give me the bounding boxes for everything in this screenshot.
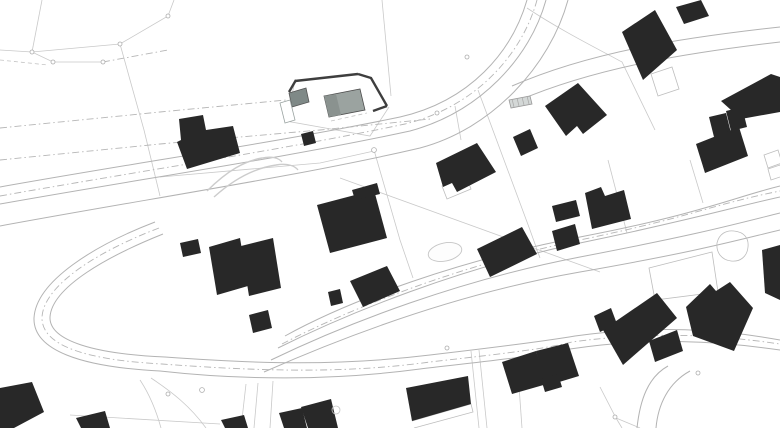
building-s-1 (406, 376, 471, 421)
survey-markers-shape (696, 371, 700, 375)
south-branch-2 (656, 371, 690, 428)
building-e-small-1 (552, 200, 580, 222)
parcel-lines-shape (254, 383, 258, 428)
building-center-house (317, 190, 387, 253)
building-c-garage (328, 289, 343, 306)
site-plan (0, 0, 780, 428)
building-w-large (177, 115, 240, 169)
survey-markers-shape (200, 388, 205, 393)
building-c-east (477, 227, 537, 277)
survey-markers-shape (166, 14, 170, 18)
building-center-big (436, 143, 496, 192)
parcel-lines-shape (140, 380, 161, 428)
parcel-lines-shape (32, 0, 174, 52)
parcel-lines-shape (600, 387, 622, 428)
south-branch-1 (637, 366, 668, 428)
parcel-lines-shape (382, 0, 391, 96)
survey-markers-shape (445, 346, 449, 350)
building-e-edge (762, 245, 780, 300)
site-structures (280, 88, 532, 123)
building-sw-corner (0, 382, 44, 428)
site-plan-canvas (0, 0, 780, 428)
site-garage (289, 88, 309, 107)
parcel-lines-shape (270, 381, 273, 428)
parcel-lines-shape (32, 0, 42, 52)
boundary-dashdot-shape (103, 50, 168, 62)
building-c-house (350, 266, 400, 307)
site-boundary-n (295, 74, 358, 81)
pond-oval (427, 240, 464, 265)
building-mid-garage (180, 239, 201, 257)
building-sc-2 (301, 399, 338, 428)
road-edges (0, 0, 780, 428)
building-e-small-2 (552, 224, 580, 251)
dashed-parcel-shape (0, 60, 48, 65)
survey-markers-shape (166, 392, 170, 396)
survey-markers-shape (101, 60, 105, 64)
survey-markers-shape (118, 42, 122, 46)
building-ne-main (622, 10, 677, 80)
boundary-dashdot-shape (0, 100, 286, 128)
driveway-loop (717, 231, 748, 261)
driveway-curves (207, 157, 298, 197)
building-mid-2 (241, 238, 281, 296)
carport-outline-ne (651, 67, 679, 96)
survey-markers-shape (51, 60, 55, 64)
dashed-parcel (0, 60, 367, 121)
building-ne-corner (676, 0, 709, 24)
parcel-lines-shape (120, 44, 160, 196)
building-n-small (513, 129, 538, 156)
site-boundary-w (289, 80, 296, 92)
site-boundary-se (373, 106, 387, 111)
parcel-lines-shape (616, 418, 640, 428)
building-sw-3 (221, 415, 248, 428)
shed-outline-e1 (764, 150, 780, 168)
survey-markers-shape (613, 415, 617, 419)
pond (427, 240, 464, 265)
survey-markers-shape (372, 148, 377, 153)
building-sw-2 (76, 411, 110, 428)
survey-markers-shape (435, 111, 439, 115)
buildings (0, 0, 780, 428)
building-mid-sq (249, 310, 272, 333)
parcel-lines-shape (690, 160, 703, 203)
building-ne-complex-4 (696, 127, 748, 173)
survey-markers-shape (30, 50, 34, 54)
building-n-mid (545, 83, 607, 136)
survey-markers-shape (465, 55, 469, 59)
building-s-4 (686, 282, 753, 351)
